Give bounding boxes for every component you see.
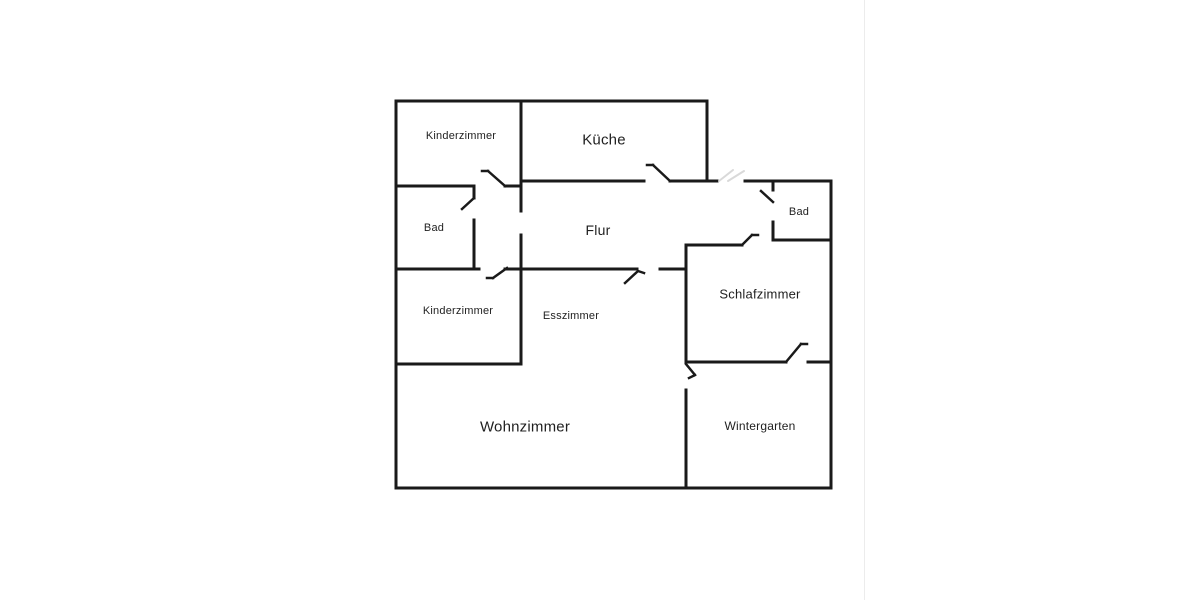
floorplan-walls (0, 0, 1200, 600)
room-label-wintergarten: Wintergarten (724, 419, 795, 433)
room-label-esszimmer: Esszimmer (543, 310, 599, 322)
door-leaf-marks (462, 165, 807, 378)
room-label-kinderzimmer-top: Kinderzimmer (426, 130, 496, 142)
room-label-schlafzimmer: Schlafzimmer (719, 287, 800, 302)
erased-door-artifact (719, 170, 744, 181)
floorplan-canvas: Kinderzimmer Küche Bad Flur Kinderzimmer… (0, 0, 1200, 600)
room-label-bad-left: Bad (424, 222, 444, 234)
room-label-wohnzimmer: Wohnzimmer (480, 419, 570, 436)
room-label-flur: Flur (586, 222, 611, 238)
page-edge-divider (864, 0, 865, 600)
room-label-kinderzimmer-left: Kinderzimmer (423, 305, 493, 317)
room-label-bad-right: Bad (789, 206, 809, 218)
room-label-kueche: Küche (582, 132, 626, 149)
